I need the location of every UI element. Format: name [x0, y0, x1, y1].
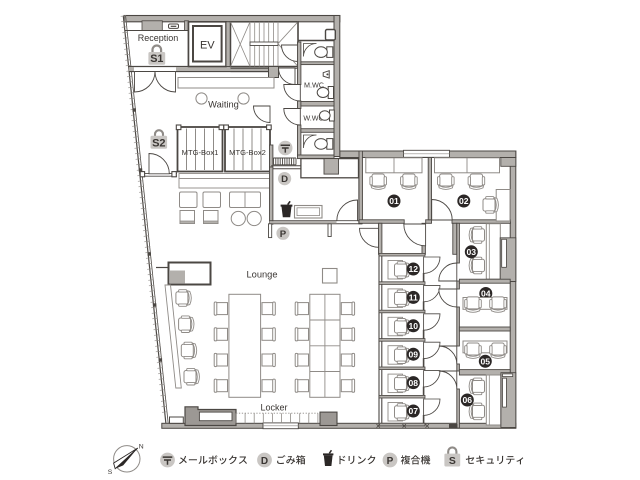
svg-text:S2: S2: [152, 137, 165, 149]
svg-text:Lounge: Lounge: [246, 270, 277, 280]
svg-text:S: S: [449, 456, 456, 467]
svg-text:Reception: Reception: [138, 33, 179, 43]
svg-text:10: 10: [409, 321, 419, 331]
svg-text:P: P: [280, 229, 287, 240]
svg-text:N: N: [139, 444, 144, 451]
svg-text:P: P: [387, 456, 394, 467]
svg-text:02: 02: [459, 196, 469, 206]
svg-text:03: 03: [467, 247, 477, 257]
svg-text:06: 06: [463, 395, 473, 405]
svg-text:D: D: [281, 174, 288, 185]
svg-text:S1: S1: [150, 53, 163, 65]
svg-text:11: 11: [409, 293, 418, 303]
svg-text:09: 09: [409, 349, 419, 359]
svg-text:08: 08: [409, 378, 419, 388]
svg-text:D: D: [261, 456, 268, 467]
svg-text:07: 07: [409, 406, 419, 416]
svg-text:S: S: [108, 469, 113, 476]
svg-text:Waiting: Waiting: [208, 100, 239, 110]
svg-text:12: 12: [409, 264, 419, 274]
svg-text:Locker: Locker: [260, 403, 287, 413]
svg-text:05: 05: [481, 357, 491, 367]
svg-text:01: 01: [389, 196, 399, 206]
svg-text:EV: EV: [200, 40, 215, 52]
svg-text:MTG-Box2: MTG-Box2: [229, 148, 266, 157]
svg-text:MTG-Box1: MTG-Box1: [182, 148, 219, 157]
